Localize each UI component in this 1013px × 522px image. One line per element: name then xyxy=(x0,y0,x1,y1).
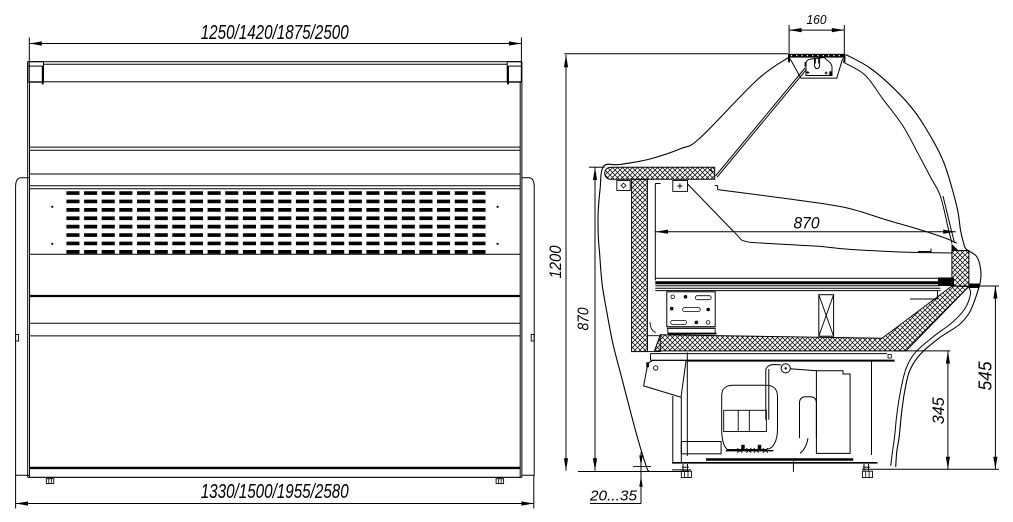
svg-text:1200: 1200 xyxy=(546,245,565,278)
svg-text:870: 870 xyxy=(794,214,820,233)
svg-text:1250/1420/1875/2500: 1250/1420/1875/2500 xyxy=(201,22,349,44)
svg-text:1330/1500/1955/2580: 1330/1500/1955/2580 xyxy=(201,481,349,503)
svg-text:870: 870 xyxy=(576,307,593,330)
svg-text:20...35: 20...35 xyxy=(589,488,638,505)
svg-text:160: 160 xyxy=(807,12,828,27)
svg-text:545: 545 xyxy=(976,361,996,391)
svg-text:345: 345 xyxy=(929,397,948,425)
